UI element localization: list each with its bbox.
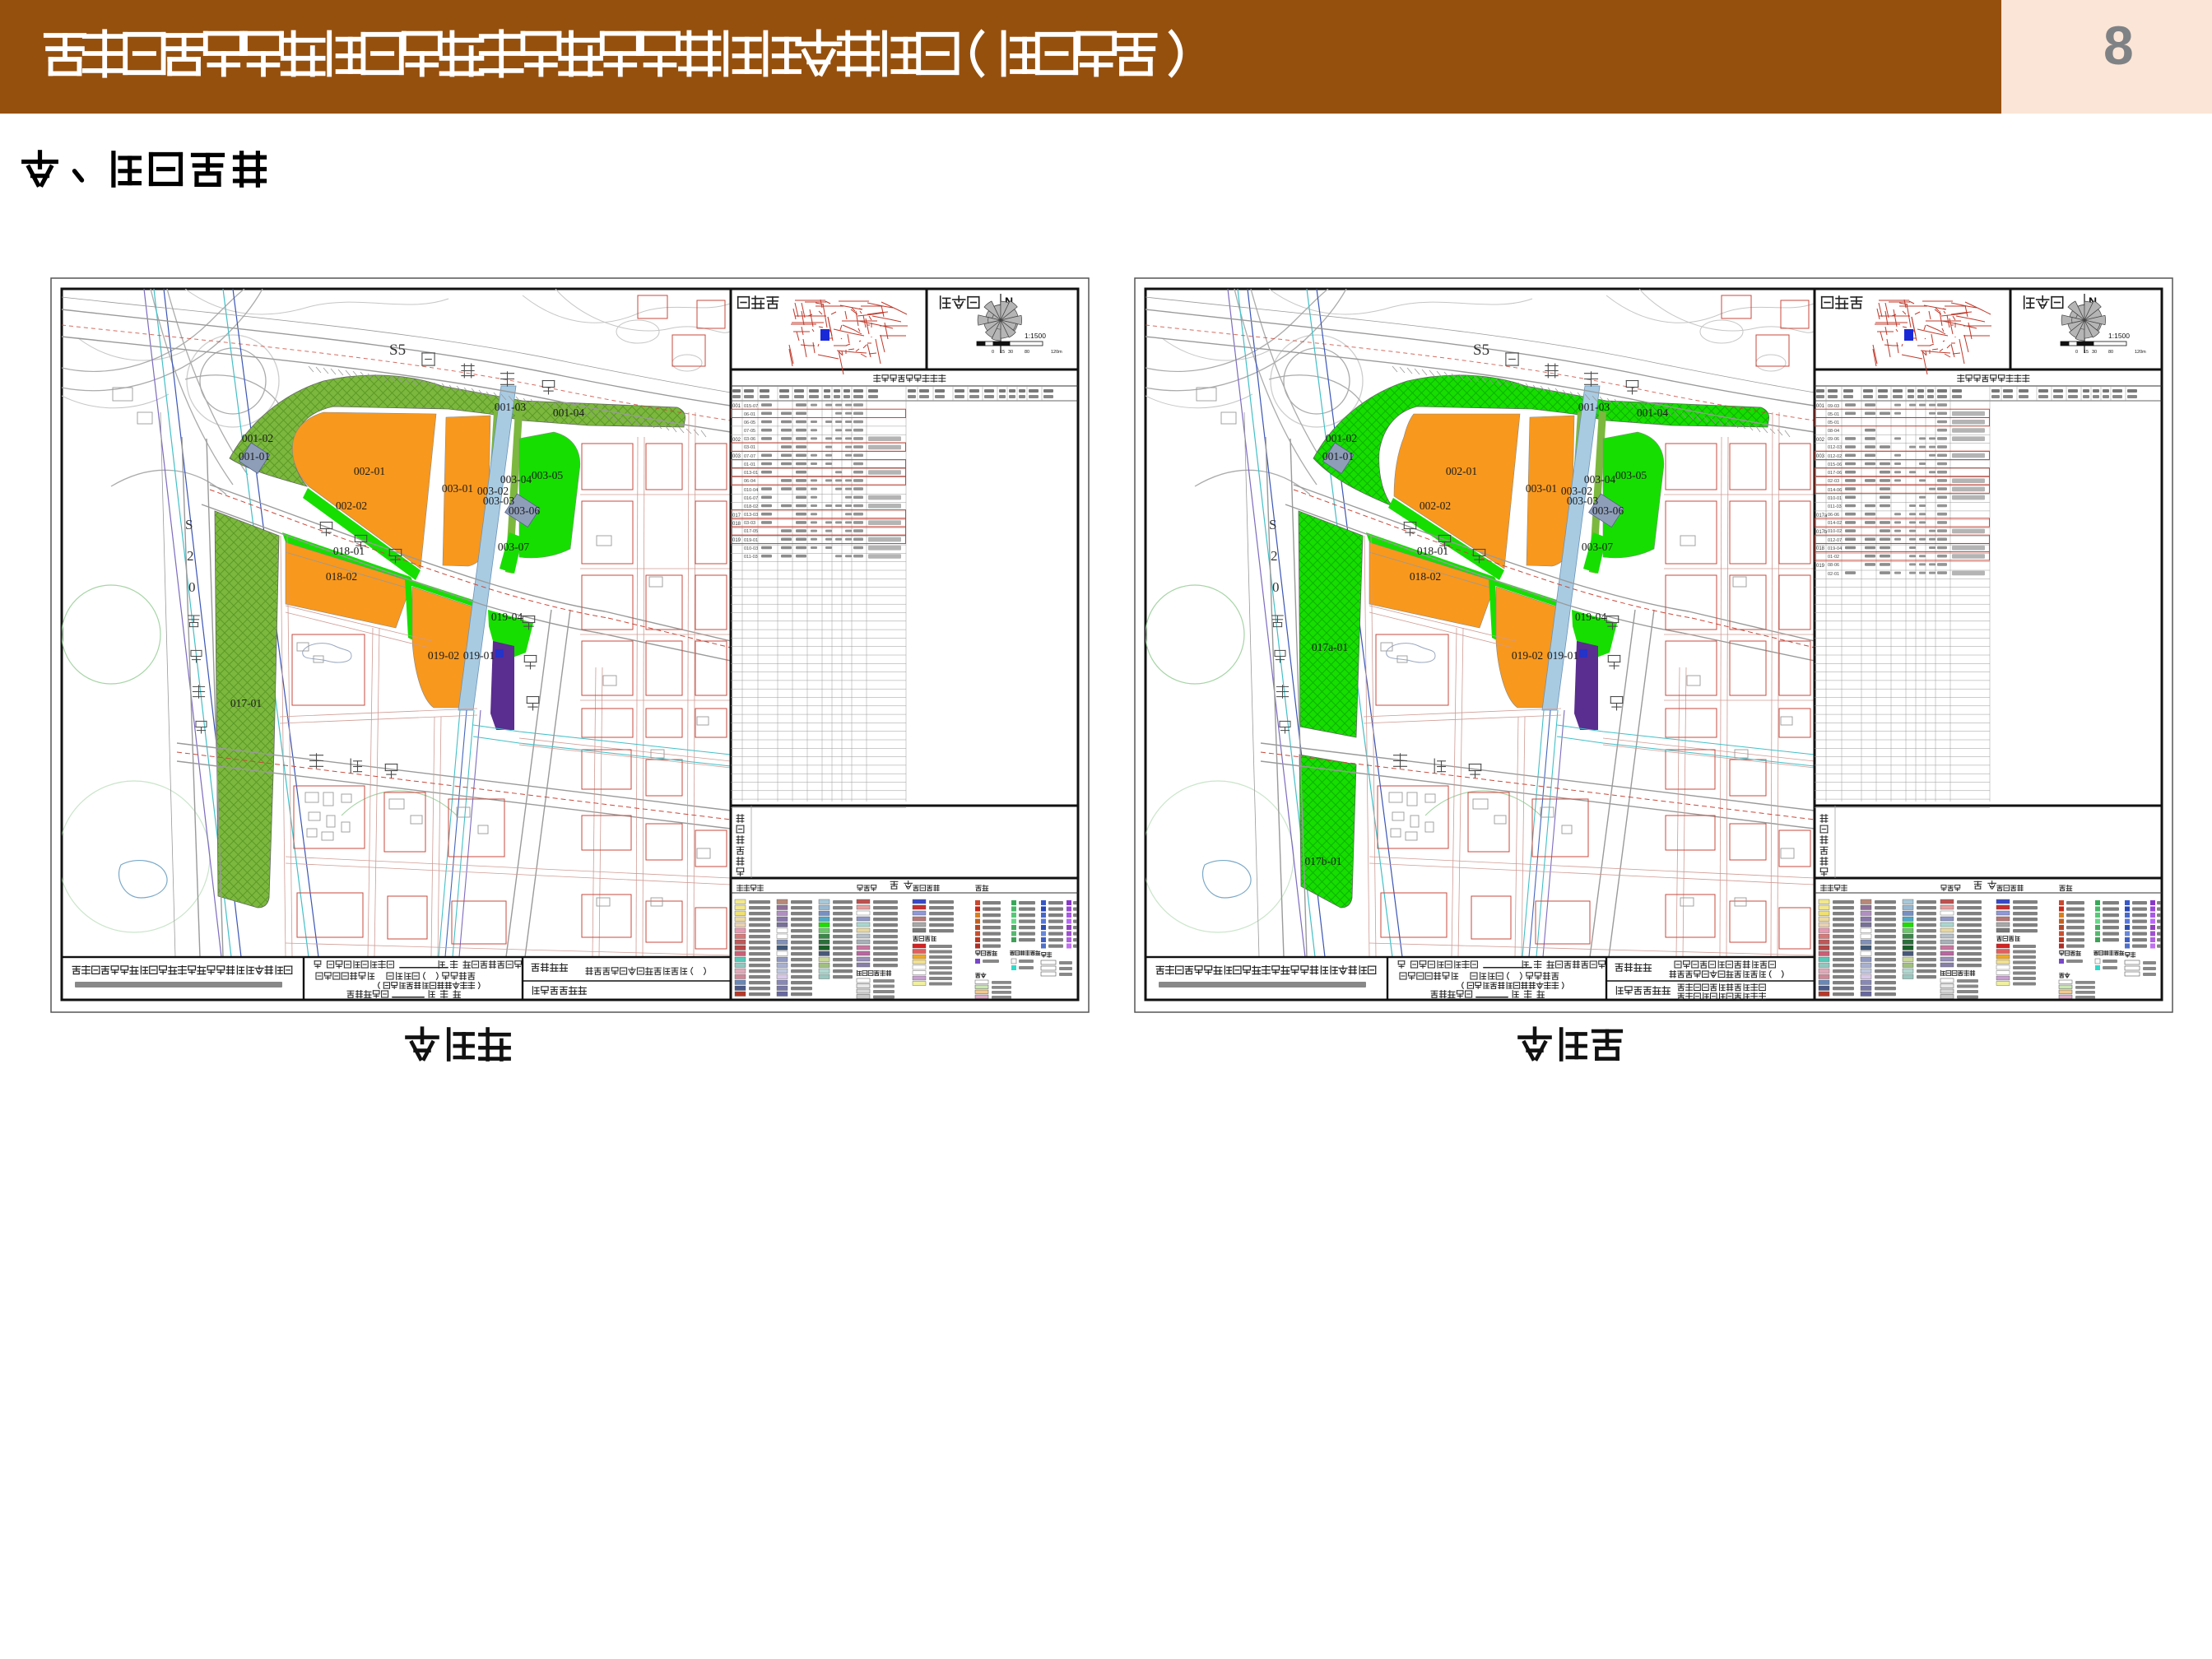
svg-text:010-04: 010-04 xyxy=(744,488,758,493)
svg-text:30: 30 xyxy=(2092,350,2097,355)
svg-text:08-06: 08-06 xyxy=(1828,563,1839,568)
svg-text:002-02: 002-02 xyxy=(336,500,367,512)
svg-text:003-04: 003-04 xyxy=(1584,473,1615,486)
svg-text:003-06: 003-06 xyxy=(1592,504,1624,517)
svg-text:05-01: 05-01 xyxy=(1828,412,1839,417)
svg-text:002-01: 002-01 xyxy=(1446,465,1477,477)
svg-text:018-01: 018-01 xyxy=(1417,545,1448,557)
svg-text:011-03: 011-03 xyxy=(1828,504,1842,509)
svg-text:017a: 017a xyxy=(1816,513,1828,518)
svg-text:01-02: 01-02 xyxy=(1828,555,1839,560)
svg-text:012-07: 012-07 xyxy=(1828,538,1842,543)
svg-text:001-02: 001-02 xyxy=(1326,432,1357,444)
svg-text:018-01: 018-01 xyxy=(333,545,365,557)
svg-text:1:1500: 1:1500 xyxy=(1025,332,1046,340)
svg-text:S5: S5 xyxy=(1473,342,1489,359)
svg-text:120m: 120m xyxy=(1051,350,1062,355)
svg-text:1:1500: 1:1500 xyxy=(2108,332,2130,340)
svg-text:06-05: 06-05 xyxy=(744,421,755,425)
svg-text:80: 80 xyxy=(1025,350,1029,355)
svg-text:013-01: 013-01 xyxy=(744,471,758,476)
svg-text:S5: S5 xyxy=(389,342,406,359)
svg-text:019-01: 019-01 xyxy=(744,538,758,543)
svg-text:002-01: 002-01 xyxy=(354,465,385,477)
svg-text:001-04: 001-04 xyxy=(553,407,584,419)
svg-text:15: 15 xyxy=(1000,350,1005,355)
svg-text:019-01: 019-01 xyxy=(1547,649,1578,662)
svg-text:01-01: 01-01 xyxy=(744,462,755,467)
svg-text:06-06: 06-06 xyxy=(1828,513,1839,518)
svg-text:0: 0 xyxy=(2075,350,2078,355)
svg-text:003-07: 003-07 xyxy=(1582,541,1613,553)
svg-text:017-01: 017-01 xyxy=(230,697,262,709)
svg-text:012-03: 012-03 xyxy=(1828,445,1842,450)
svg-text:06-01: 06-01 xyxy=(744,412,755,417)
svg-text:019: 019 xyxy=(732,538,741,543)
svg-text:15: 15 xyxy=(2084,350,2089,355)
svg-text:018: 018 xyxy=(732,522,741,527)
svg-text:019: 019 xyxy=(1816,564,1825,569)
svg-text:003-06: 003-06 xyxy=(509,504,540,517)
svg-text:09-03: 09-03 xyxy=(1828,404,1839,409)
svg-text:019-04: 019-04 xyxy=(1828,546,1842,551)
svg-text:003: 003 xyxy=(1816,454,1825,459)
svg-text:2: 2 xyxy=(1271,548,1278,564)
svg-text:002-02: 002-02 xyxy=(1420,500,1451,512)
svg-text:001: 001 xyxy=(1816,404,1825,409)
svg-text:010-03: 010-03 xyxy=(744,546,758,551)
svg-text:011-03: 011-03 xyxy=(744,555,758,560)
svg-text:30: 30 xyxy=(1008,350,1013,355)
svg-text:017a-01: 017a-01 xyxy=(1312,641,1348,653)
svg-text:0: 0 xyxy=(1272,579,1280,595)
svg-text:03-03: 03-03 xyxy=(744,521,755,526)
svg-text:003-05: 003-05 xyxy=(532,469,563,481)
svg-text:019-02: 019-02 xyxy=(1512,649,1543,662)
svg-text:8: 8 xyxy=(2103,15,2134,76)
svg-text:03-06: 03-06 xyxy=(744,437,755,442)
svg-text:001-02: 001-02 xyxy=(242,432,273,444)
svg-text:2: 2 xyxy=(187,548,194,564)
svg-text:06-04: 06-04 xyxy=(744,479,755,484)
svg-text:017-05: 017-05 xyxy=(744,529,758,534)
svg-text:80: 80 xyxy=(2108,350,2113,355)
svg-text:003-05: 003-05 xyxy=(1615,469,1647,481)
svg-text:018-02: 018-02 xyxy=(744,504,758,509)
svg-text:003-01: 003-01 xyxy=(1526,482,1557,495)
svg-text:017b-01: 017b-01 xyxy=(1305,855,1342,867)
svg-text:003-07: 003-07 xyxy=(498,541,529,553)
svg-text:07-07: 07-07 xyxy=(744,454,755,459)
svg-text:015-06: 015-06 xyxy=(1828,462,1842,467)
svg-text:002: 002 xyxy=(1816,438,1825,443)
svg-text:016-07: 016-07 xyxy=(744,496,758,501)
svg-text:001-03: 001-03 xyxy=(1578,401,1610,413)
svg-text:014-02: 014-02 xyxy=(1828,521,1842,526)
svg-text:003-01: 003-01 xyxy=(442,482,473,495)
svg-text:120m: 120m xyxy=(2135,350,2146,355)
svg-text:002: 002 xyxy=(732,438,741,443)
svg-text:03-01: 03-01 xyxy=(744,445,755,450)
svg-text:015-07: 015-07 xyxy=(744,404,758,409)
svg-text:017: 017 xyxy=(732,513,741,518)
svg-text:019-02: 019-02 xyxy=(428,649,459,662)
svg-text:012-02: 012-02 xyxy=(1828,454,1842,459)
svg-text:02-03: 02-03 xyxy=(1828,479,1839,484)
svg-text:001: 001 xyxy=(732,404,741,409)
svg-text:08-04: 08-04 xyxy=(1828,429,1839,434)
svg-text:018-02: 018-02 xyxy=(326,570,357,583)
svg-text:018-02: 018-02 xyxy=(1410,570,1441,583)
svg-text:010-01: 010-01 xyxy=(1828,496,1842,501)
svg-text:001-04: 001-04 xyxy=(1637,407,1668,419)
svg-text:09-06: 09-06 xyxy=(1828,437,1839,442)
svg-text:S: S xyxy=(1269,517,1276,532)
svg-text:02-01: 02-01 xyxy=(1828,572,1839,577)
svg-text:013-03: 013-03 xyxy=(744,513,758,518)
svg-text:001-01: 001-01 xyxy=(1322,450,1354,462)
svg-text:001-01: 001-01 xyxy=(239,450,270,462)
svg-text:017-06: 017-06 xyxy=(1828,471,1842,476)
svg-text:05-01: 05-01 xyxy=(1828,421,1839,425)
svg-text:014-06: 014-06 xyxy=(1828,488,1842,493)
svg-text:010-02: 010-02 xyxy=(1828,529,1842,534)
svg-text:019-04: 019-04 xyxy=(491,611,523,623)
svg-text:017b: 017b xyxy=(1816,530,1828,535)
svg-text:019-01: 019-01 xyxy=(463,649,495,662)
svg-text:001-03: 001-03 xyxy=(495,401,526,413)
svg-text:003: 003 xyxy=(732,454,741,459)
svg-text:S: S xyxy=(185,517,193,532)
svg-text:019-04: 019-04 xyxy=(1575,611,1606,623)
svg-text:018: 018 xyxy=(1816,546,1825,551)
svg-text:0: 0 xyxy=(188,579,196,595)
svg-text:0: 0 xyxy=(992,350,994,355)
svg-text:003-04: 003-04 xyxy=(500,473,532,486)
svg-text:07-05: 07-05 xyxy=(744,429,755,434)
